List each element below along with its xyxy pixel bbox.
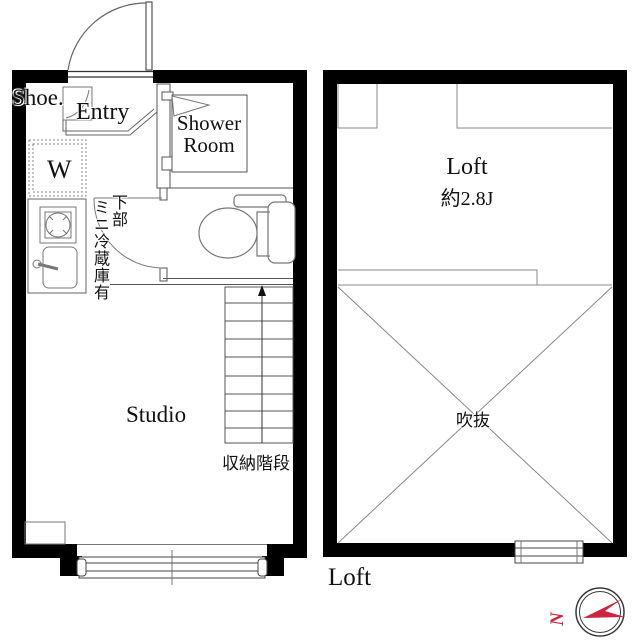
stove-icon	[40, 207, 76, 243]
shower-room-label-line1: Shower	[167, 112, 251, 134]
toilet-icon	[199, 195, 295, 263]
right-plan-walls	[323, 70, 627, 557]
compass	[576, 588, 625, 636]
compass-needle	[583, 599, 625, 618]
fridge-note-left-column: ミニ冷蔵庫有	[87, 199, 111, 301]
door-jamb-mark	[162, 157, 173, 170]
compass-north-letter: N	[547, 612, 569, 626]
entry-door	[68, 2, 153, 77]
studio-label: Studio	[126, 402, 186, 428]
loft-room-label: Loft	[417, 154, 517, 181]
stairs-label: 収納階段	[222, 449, 290, 474]
entry-door-arc	[68, 3, 146, 70]
main-window	[77, 545, 267, 586]
floorplan-canvas: Shoe. Entry Shower Room W 下部 ミニ冷蔵庫有 Stud…	[0, 0, 640, 640]
shoe-label: Shoe.	[12, 85, 64, 111]
storage-stairs	[225, 285, 293, 443]
loft-edge-band	[338, 270, 612, 285]
floorplan-drawing	[0, 0, 640, 640]
loft-size-label: 約2.8J	[417, 182, 517, 211]
loft-caption: Loft	[328, 564, 371, 592]
loft-top-outlines	[338, 84, 612, 128]
shower-room-label-line2: Room	[167, 134, 251, 156]
loft-window	[515, 541, 583, 563]
toilet-bowl	[199, 208, 257, 258]
shower-room-label: Shower Room	[167, 112, 251, 156]
toilet-tank	[268, 202, 295, 263]
kitchen-counter	[28, 199, 86, 293]
entry-label: Entry	[76, 99, 129, 126]
ledge	[25, 522, 65, 544]
door-jamb-mark	[162, 92, 173, 100]
void-label: 吹抜	[456, 406, 490, 431]
washer-label: W	[47, 155, 72, 185]
